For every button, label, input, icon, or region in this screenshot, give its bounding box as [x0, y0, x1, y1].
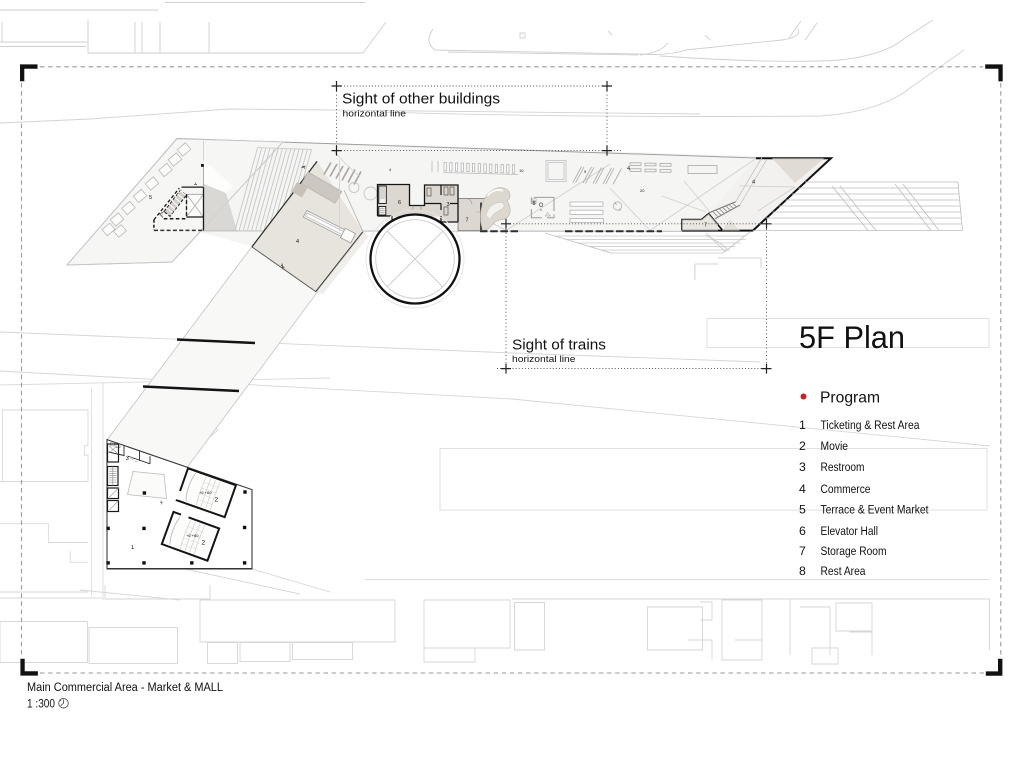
svg-text:7: 7	[799, 544, 806, 558]
svg-text:horizontal line: horizontal line	[343, 109, 407, 120]
svg-text:3: 3	[447, 202, 450, 208]
svg-text:Rest Area: Rest Area	[821, 564, 866, 578]
svg-text:Sight of other buildings: Sight of other buildings	[342, 91, 500, 108]
svg-text:Storage Room: Storage Room	[821, 544, 887, 558]
svg-text:Terrace & Event Market: Terrace & Event Market	[821, 502, 929, 516]
svg-text:8: 8	[799, 564, 806, 578]
svg-text:10: 10	[519, 168, 524, 173]
svg-text:8: 8	[533, 201, 536, 207]
svg-text:+6 +60: +6 +60	[199, 490, 212, 495]
svg-text:horizontal line: horizontal line	[512, 354, 576, 365]
svg-text:5: 5	[799, 502, 806, 516]
svg-text:Ticketing & Rest Area: Ticketing & Rest Area	[821, 418, 920, 432]
svg-text:Program: Program	[820, 390, 880, 407]
svg-text:+6 +60: +6 +60	[186, 533, 199, 538]
svg-text:Sight of trains: Sight of trains	[512, 337, 606, 354]
svg-text:4: 4	[627, 166, 630, 172]
svg-text:Main Commercial Area - Market: Main Commercial Area - Market & MALL	[27, 682, 224, 694]
svg-text:2: 2	[215, 497, 219, 504]
svg-text:1 :300: 1 :300	[27, 699, 55, 711]
svg-text:3: 3	[799, 460, 806, 474]
svg-text:2: 2	[799, 439, 806, 453]
svg-text:6: 6	[398, 200, 401, 206]
svg-text:Elevator Hall: Elevator Hall	[821, 524, 879, 538]
svg-text:2: 2	[202, 540, 206, 547]
svg-text:5: 5	[149, 195, 152, 201]
svg-text:4: 4	[296, 239, 299, 245]
svg-text:4: 4	[752, 180, 755, 186]
svg-text:5F Plan: 5F Plan	[799, 319, 905, 355]
svg-text:Restroom: Restroom	[821, 460, 865, 474]
svg-text:4: 4	[799, 482, 806, 496]
svg-text:7: 7	[466, 218, 469, 224]
svg-text:20: 20	[640, 188, 645, 193]
svg-text:Movie: Movie	[821, 439, 849, 453]
svg-text:Commerce: Commerce	[821, 482, 871, 496]
svg-text:6: 6	[799, 524, 806, 538]
svg-text:1: 1	[799, 418, 806, 432]
